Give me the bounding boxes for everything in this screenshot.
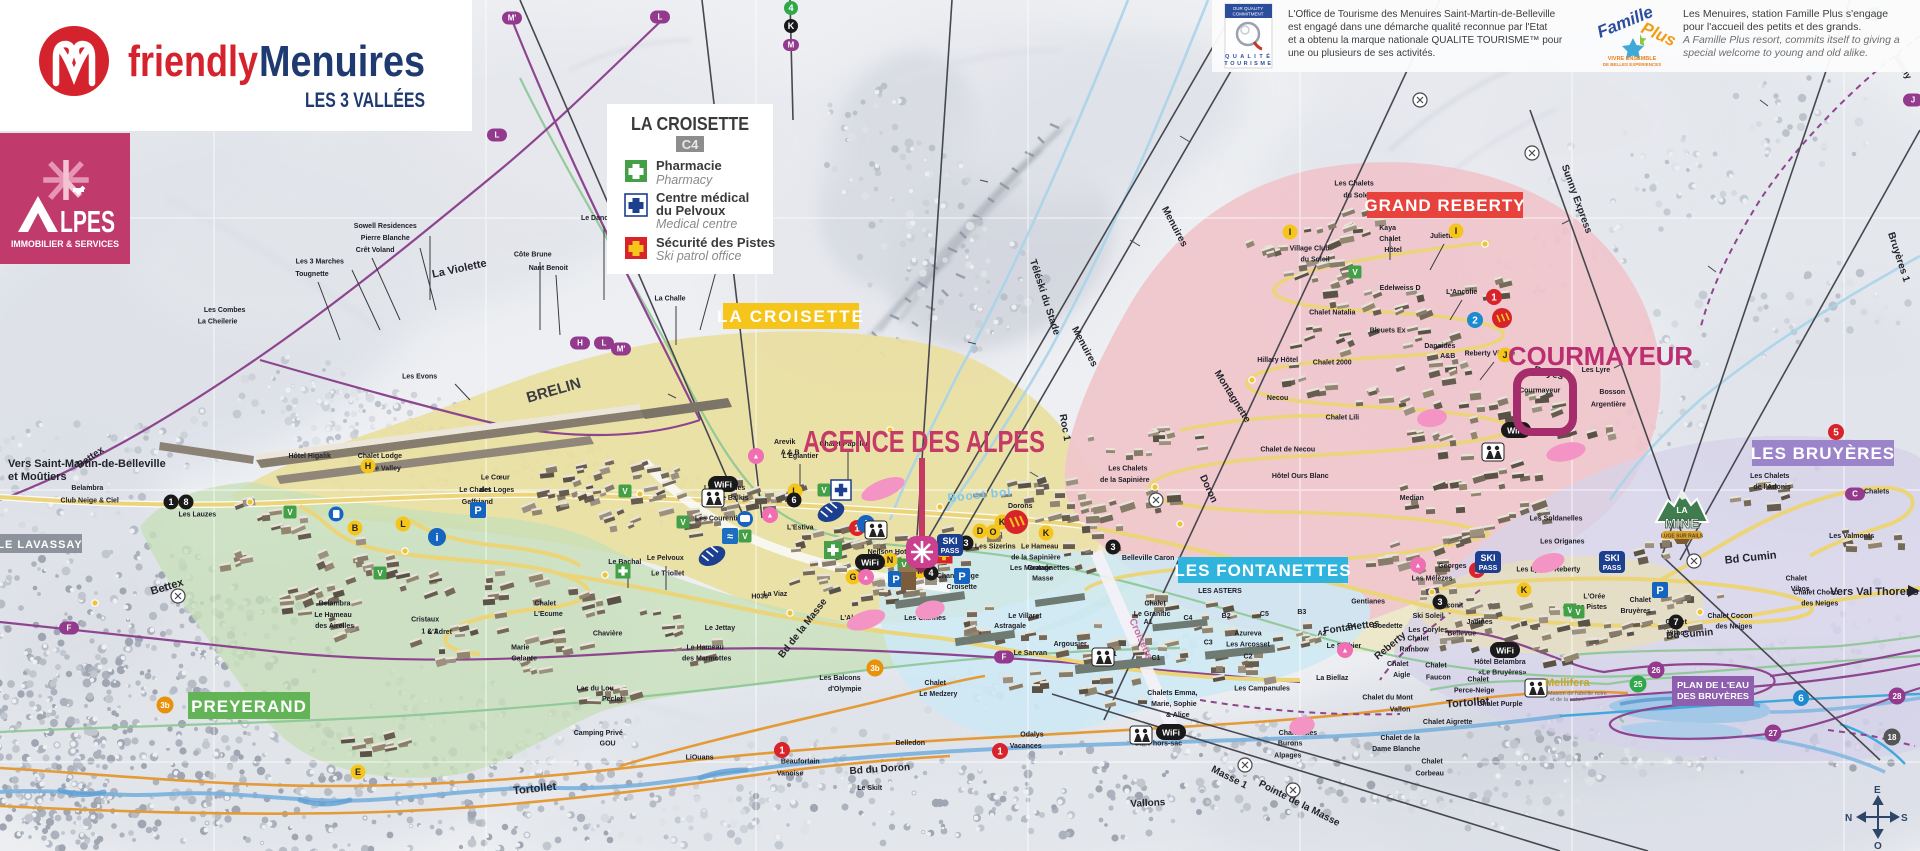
svg-text:▲: ▲: [767, 513, 774, 520]
svg-text:Hôtel Ours Blanc: Hôtel Ours Blanc: [1272, 473, 1329, 480]
svg-text:Courmayeur: Courmayeur: [1519, 387, 1561, 394]
svg-text:25: 25: [1634, 680, 1643, 689]
svg-text:Masse: Masse: [1032, 575, 1054, 582]
svg-text:LES FONTANETTES: LES FONTANETTES: [1174, 561, 1351, 580]
svg-text:Pierre Blanche: Pierre Blanche: [361, 235, 410, 242]
svg-text:Vacances: Vacances: [1010, 743, 1042, 750]
svg-text:G: G: [849, 572, 856, 582]
svg-text:Marie: Marie: [511, 645, 529, 652]
svg-text:3b: 3b: [160, 701, 169, 710]
svg-text:B2: B2: [1222, 613, 1231, 620]
svg-text:Le Hameau: Le Hameau: [686, 645, 723, 652]
svg-text:Les Chalets: Les Chalets: [1108, 465, 1147, 472]
svg-text:Sécurité des Pistes: Sécurité des Pistes: [656, 235, 775, 250]
svg-text:Corbeau: Corbeau: [1416, 770, 1444, 777]
svg-text:& Alice: & Alice: [1166, 712, 1190, 719]
svg-text:Vihos: Vihos: [1791, 586, 1810, 593]
svg-text:Mellifera: Mellifera: [1545, 677, 1591, 689]
svg-text:L: L: [495, 131, 500, 140]
svg-text:L'Orée: L'Orée: [1583, 593, 1605, 600]
svg-text:Perce-Neige: Perce-Neige: [1454, 688, 1495, 695]
svg-text:Q U A L I T É: Q U A L I T É: [1225, 52, 1271, 60]
svg-text:et Moûtiers: et Moûtiers: [8, 471, 67, 483]
svg-text:N: N: [1845, 813, 1852, 824]
svg-text:Chalet: Chalet: [1407, 635, 1429, 642]
svg-text:V: V: [287, 508, 293, 517]
svg-text:WiFi: WiFi: [714, 480, 732, 490]
svg-text:Argentière: Argentière: [1591, 401, 1626, 408]
svg-text:Peclet: Peclet: [602, 696, 623, 703]
svg-text:Rainbow: Rainbow: [1400, 646, 1430, 653]
svg-text:L'Ancolie: L'Ancolie: [1446, 289, 1477, 296]
svg-text:Menuires: Menuires: [259, 37, 425, 86]
svg-text:LE LAVASSAY: LE LAVASSAY: [0, 539, 83, 551]
svg-text:Medical centre: Medical centre: [656, 217, 737, 231]
svg-text:Vers Saint-Martin-de-Bellevill: Vers Saint-Martin-de-Belleville: [8, 458, 166, 470]
svg-text:Chalet de Necou: Chalet de Necou: [1260, 447, 1315, 454]
svg-text:Vallon: Vallon: [1390, 706, 1411, 713]
svg-text:L: L: [658, 13, 663, 22]
svg-text:H: H: [577, 339, 583, 348]
svg-text:Le Sarvan: Le Sarvan: [1014, 650, 1047, 657]
svg-text:3b: 3b: [870, 664, 879, 673]
svg-text:des Airelles: des Airelles: [315, 623, 354, 630]
svg-text:LPES: LPES: [60, 204, 115, 239]
svg-text:K: K: [1043, 528, 1050, 538]
svg-text:Les Montagnettes: Les Montagnettes: [1010, 565, 1070, 572]
svg-text:K: K: [788, 21, 795, 31]
svg-text:Les Coryles: Les Coryles: [1408, 627, 1448, 634]
svg-text:WiFi: WiFi: [1496, 646, 1514, 656]
svg-text:1: 1: [1491, 293, 1497, 304]
svg-text:Le Triollet: Le Triollet: [651, 571, 685, 578]
svg-text:Chalet: Chalet: [1421, 759, 1443, 766]
svg-text:LA CROISETTE: LA CROISETTE: [631, 114, 749, 134]
svg-text:Belleville Caron: Belleville Caron: [1122, 555, 1175, 562]
svg-text:La Biellaz: La Biellaz: [1316, 675, 1349, 682]
svg-text:3: 3: [1437, 597, 1442, 607]
svg-text:PASS: PASS: [1603, 565, 1622, 572]
svg-text:Lac du Lou: Lac du Lou: [576, 685, 613, 692]
svg-text:Chavière: Chavière: [593, 631, 623, 638]
svg-text:LA CROISETTE: LA CROISETTE: [717, 307, 865, 326]
svg-text:Ski patrol office: Ski patrol office: [656, 249, 742, 263]
svg-text:d'Olympie: d'Olympie: [828, 686, 862, 693]
svg-text:Cristaux: Cristaux: [411, 617, 439, 624]
svg-text:Hôtel Higalik: Hôtel Higalik: [288, 453, 331, 460]
svg-text:Burons: Burons: [1278, 741, 1303, 748]
svg-text:Belledon: Belledon: [895, 740, 925, 747]
svg-text:Les 3 Marches: Les 3 Marches: [296, 259, 344, 266]
svg-text:SKI: SKI: [1480, 553, 1495, 563]
svg-text:Bruyères: Bruyères: [1620, 608, 1650, 615]
svg-text:T O U R I S M E: T O U R I S M E: [1224, 61, 1271, 67]
svg-text:PASS: PASS: [941, 548, 960, 555]
svg-text:P: P: [958, 571, 965, 583]
svg-text:F: F: [67, 624, 72, 633]
svg-text:C2: C2: [1244, 653, 1253, 660]
svg-text:Pharmacie: Pharmacie: [656, 158, 722, 173]
svg-text:J: J: [1911, 96, 1915, 105]
svg-text:Faucon: Faucon: [1426, 674, 1451, 681]
svg-text:WiFi: WiFi: [861, 558, 879, 568]
svg-text:1: 1: [997, 747, 1003, 758]
svg-text:Le Medzery: Le Medzery: [919, 691, 957, 698]
svg-text:C5: C5: [1260, 611, 1269, 618]
svg-text:V: V: [742, 532, 748, 541]
svg-text:du Pelvoux: du Pelvoux: [656, 203, 726, 218]
svg-text:Chalet: Chalet: [1786, 575, 1808, 582]
svg-text:Club Neige & Ciel: Club Neige & Ciel: [61, 497, 119, 504]
svg-text:Chalet: Chalet: [1467, 677, 1489, 684]
svg-text:Chalet Lili: Chalet Lili: [1326, 415, 1360, 422]
svg-text:N: N: [887, 555, 894, 565]
svg-text:O: O: [989, 527, 996, 537]
svg-text:Les Campanules: Les Campanules: [1234, 685, 1290, 692]
svg-text:4: 4: [928, 568, 933, 578]
svg-text:Pharmacy: Pharmacy: [656, 173, 713, 187]
svg-text:Chalet Lodge: Chalet Lodge: [358, 453, 402, 460]
svg-text:Bosson: Bosson: [1599, 389, 1625, 396]
svg-text:B: B: [352, 523, 359, 533]
svg-text:Nant Benoit: Nant Benoit: [529, 265, 569, 272]
svg-text:Le Skilt: Le Skilt: [857, 785, 883, 792]
svg-text:Beaufortain: Beaufortain: [781, 759, 820, 766]
svg-text:Argousier: Argousier: [1054, 641, 1087, 648]
svg-text:PLAN DE L'EAU: PLAN DE L'EAU: [1677, 680, 1749, 690]
svg-text:8: 8: [183, 497, 188, 507]
svg-text:special welcome to young and o: special welcome to young and old alike.: [1683, 47, 1868, 59]
svg-text:Les Lauzes: Les Lauzes: [178, 511, 216, 518]
svg-text:Arevik: Arevik: [774, 439, 796, 446]
svg-text:SKI: SKI: [942, 536, 957, 546]
svg-text:6: 6: [1798, 694, 1804, 705]
svg-text:Vallons: Vallons: [1130, 797, 1166, 810]
svg-text:GOU: GOU: [600, 741, 616, 748]
svg-text:B3: B3: [1297, 609, 1306, 616]
svg-text:Le Cœur: Le Cœur: [481, 475, 510, 482]
svg-text:A & B: A & B: [781, 450, 800, 457]
svg-text:E: E: [355, 767, 361, 777]
svg-text:V: V: [377, 569, 383, 578]
svg-text:Marie, Sophie: Marie, Sophie: [1151, 701, 1197, 708]
svg-text:pour l'accueil des petits et d: pour l'accueil des petits et des grands.: [1683, 21, 1861, 33]
svg-text:L'Office de Tourisme des Menui: L'Office de Tourisme des Menuires Saint-…: [1288, 9, 1556, 20]
svg-text:A Famille Plus resort, commits: A Famille Plus resort, commits itself to…: [1682, 34, 1900, 46]
svg-text:des Neiges: des Neiges: [1715, 624, 1752, 631]
svg-text:E: E: [1874, 785, 1881, 796]
svg-text:I: I: [1289, 227, 1292, 237]
svg-text:Chalet du Mont: Chalet du Mont: [1362, 695, 1413, 702]
svg-text:V: V: [680, 518, 686, 527]
svg-text:Les Menuires, station Famille: Les Menuires, station Famille Plus s'eng…: [1683, 8, 1888, 20]
svg-text:Chalet: Chalet: [1630, 597, 1652, 604]
svg-text:Le Hameau: Le Hameau: [1021, 543, 1058, 550]
svg-text:Edelweiss D: Edelweiss D: [1380, 285, 1421, 292]
svg-text:OUR QUALITY: OUR QUALITY: [1233, 6, 1264, 11]
svg-text:PREYERAND: PREYERAND: [191, 697, 307, 716]
svg-text:Chalet de la: Chalet de la: [1380, 735, 1419, 742]
svg-text:Bleuets Ex: Bleuets Ex: [1370, 327, 1406, 334]
svg-text:V: V: [1352, 268, 1358, 277]
svg-text:4: 4: [788, 3, 793, 13]
svg-text:LUGE SUR RAILS: LUGE SUR RAILS: [1661, 534, 1704, 540]
svg-text:«Le Bruyères»: «Le Bruyères»: [1478, 670, 1526, 677]
svg-text:C3: C3: [1204, 639, 1213, 646]
svg-text:Les Chalets: Les Chalets: [1750, 473, 1789, 480]
svg-text:L'Estiva: L'Estiva: [787, 525, 814, 532]
svg-text:L: L: [400, 519, 406, 529]
svg-text:2: 2: [1472, 316, 1478, 327]
svg-text:Vanoise: Vanoise: [777, 770, 804, 777]
svg-text:LES 3 VALLÉES: LES 3 VALLÉES: [305, 89, 425, 112]
svg-text:LiOuans: LiOuans: [686, 755, 714, 762]
svg-text:Hôtel Belambra: Hôtel Belambra: [1474, 659, 1525, 666]
svg-text:Le Granitic: Le Granitic: [1134, 611, 1171, 618]
svg-text:Le Pelvoux: Le Pelvoux: [647, 555, 684, 562]
svg-text:Chalet Natalia: Chalet Natalia: [1309, 309, 1355, 316]
svg-text:Median: Median: [1400, 495, 1424, 502]
svg-text:Le Chalet: Le Chalet: [459, 487, 491, 494]
svg-text:Chalet Aigrette: Chalet Aigrette: [1423, 719, 1473, 726]
svg-text:18: 18: [1888, 733, 1897, 742]
svg-text:Les Soldanelles: Les Soldanelles: [1530, 515, 1583, 522]
svg-text:Jadines: Jadines: [1467, 619, 1493, 626]
svg-text:C4: C4: [682, 137, 699, 152]
svg-text:P: P: [1656, 585, 1663, 597]
svg-text:P: P: [474, 505, 481, 517]
svg-text:S: S: [1901, 813, 1908, 824]
svg-text:Hillary Hôtel: Hillary Hôtel: [1257, 357, 1298, 364]
svg-text:Le Hameau: Le Hameau: [314, 612, 351, 619]
svg-text:▲: ▲: [1415, 563, 1422, 570]
svg-text:Sowell Residences: Sowell Residences: [354, 223, 417, 230]
svg-text:M: M: [788, 41, 795, 50]
svg-text:Côte Brune: Côte Brune: [514, 252, 552, 259]
svg-text:Croisette: Croisette: [947, 584, 977, 591]
svg-text:K: K: [1521, 585, 1528, 595]
svg-text:Les Evons: Les Evons: [402, 373, 437, 380]
svg-text:H036: H036: [751, 593, 768, 600]
svg-text:1: 1: [168, 497, 173, 507]
svg-text:3: 3: [1110, 542, 1115, 552]
svg-text:C4: C4: [1183, 615, 1192, 622]
svg-text:Necou: Necou: [1267, 395, 1288, 402]
svg-text:de la Sapinière: de la Sapinière: [1011, 554, 1061, 561]
svg-text:et a obtenu la marque national: et a obtenu la marque nationale QUALITE …: [1288, 35, 1563, 46]
svg-text:MINE: MINE: [1665, 515, 1700, 531]
svg-text:M': M': [508, 14, 517, 23]
svg-text:Odalys: Odalys: [1020, 731, 1043, 738]
svg-text:Camping Privé: Camping Privé: [574, 730, 623, 737]
svg-text:AGENCE DES ALPES: AGENCE DES ALPES: [803, 424, 1045, 459]
svg-text:▲: ▲: [863, 575, 870, 582]
svg-text:Georges: Georges: [1438, 563, 1467, 570]
svg-text:Vers Val Thorens: Vers Val Thorens: [1830, 586, 1919, 598]
svg-text:une ou plusieurs de ses activi: une ou plusieurs de ses activités.: [1288, 48, 1435, 59]
svg-text:A1: A1: [1144, 619, 1153, 626]
svg-text:DE BELLES EXPÉRIENCES: DE BELLES EXPÉRIENCES: [1603, 60, 1662, 67]
svg-text:Les Sizerins: Les Sizerins: [975, 543, 1016, 550]
svg-text:des Neiges: des Neiges: [1801, 600, 1838, 607]
svg-text:Ski Soleil: Ski Soleil: [1413, 613, 1444, 620]
svg-text:Belambra: Belambra: [71, 485, 103, 492]
svg-text:Belambra: Belambra: [319, 600, 351, 607]
svg-text:est engagé dans une démarche q: est engagé dans une démarche qualité rec…: [1288, 22, 1548, 33]
svg-text:Chalet: Chalet: [1387, 661, 1409, 668]
svg-text:Chalet: Chalet: [1144, 600, 1166, 607]
svg-text:Azureva: Azureva: [1234, 631, 1261, 638]
svg-text:Hôtel: Hôtel: [1384, 247, 1402, 254]
svg-text:Kaya: Kaya: [1379, 225, 1396, 232]
svg-text:L'Ecume: L'Ecume: [534, 611, 563, 618]
svg-text:des Marmottes: des Marmottes: [682, 656, 732, 663]
svg-text:Galante: Galante: [511, 656, 537, 663]
svg-text:Chalets Emma,: Chalets Emma,: [1147, 690, 1197, 697]
svg-text:i: i: [435, 532, 438, 544]
svg-text:Tougnette: Tougnette: [295, 271, 328, 278]
svg-text:de l'Adonis: de l'Adonis: [1753, 484, 1791, 491]
svg-text:F: F: [1002, 653, 1007, 662]
svg-text:V: V: [622, 487, 628, 496]
svg-text:O: O: [1874, 841, 1882, 851]
svg-text:5: 5: [1833, 428, 1839, 439]
svg-text:friendly: friendly: [128, 37, 258, 86]
svg-text:SKI: SKI: [1604, 553, 1619, 563]
svg-text:COMMITMENT: COMMITMENT: [1233, 12, 1264, 17]
svg-text:Les Arcosset: Les Arcosset: [1226, 642, 1270, 649]
svg-text:La Cheilerie: La Cheilerie: [198, 319, 238, 326]
svg-text:D: D: [977, 526, 984, 536]
svg-text:M': M': [617, 345, 626, 354]
svg-text:7: 7: [1673, 617, 1678, 627]
svg-text:Les Balcons: Les Balcons: [819, 675, 860, 682]
svg-text:COURMAYEUR: COURMAYEUR: [1508, 341, 1693, 371]
svg-text:GRAND REBERTY: GRAND REBERTY: [1364, 196, 1525, 215]
svg-text:27: 27: [1769, 729, 1778, 738]
svg-text:Chalet: Chalet: [1425, 663, 1447, 670]
svg-text:Les Mélèzes: Les Mélèzes: [1412, 575, 1453, 582]
svg-text:V: V: [1575, 608, 1581, 617]
svg-text:Aigle: Aigle: [1393, 672, 1410, 679]
svg-text:3: 3: [963, 538, 968, 548]
svg-text:PASS: PASS: [1479, 565, 1498, 572]
svg-text:J: J: [1502, 350, 1507, 360]
svg-text:▲: ▲: [1342, 648, 1349, 655]
svg-text:La Challe: La Challe: [654, 295, 685, 302]
svg-text:Les Origanes: Les Origanes: [1540, 539, 1584, 546]
svg-text:WiFi: WiFi: [1162, 728, 1180, 738]
svg-text:DES BRUYÈRES: DES BRUYÈRES: [1677, 691, 1749, 701]
svg-text:Le Jettay: Le Jettay: [705, 625, 735, 632]
svg-text:H: H: [365, 461, 372, 471]
svg-text:Dorons: Dorons: [1008, 503, 1033, 510]
svg-text:LES ASTERS: LES ASTERS: [1198, 588, 1242, 595]
svg-text:Danaides: Danaides: [1424, 343, 1455, 350]
svg-text:28: 28: [1893, 692, 1902, 701]
svg-text:Chalet: Chalet: [925, 680, 947, 687]
svg-text:C: C: [1852, 490, 1858, 499]
svg-text:Alpages: Alpages: [1274, 752, 1301, 759]
svg-text:Les Valmonts: Les Valmonts: [1829, 533, 1874, 540]
svg-text:Astragale: Astragale: [994, 623, 1026, 630]
svg-text:de la Sapinière: de la Sapinière: [1100, 477, 1150, 484]
svg-text:L'Adret: L'Adret: [428, 629, 453, 636]
svg-text:Village Club: Village Club: [1290, 245, 1330, 252]
svg-text:Les Combes: Les Combes: [204, 307, 246, 314]
svg-text:Gentianes: Gentianes: [1351, 599, 1385, 606]
svg-text:▲: ▲: [753, 454, 760, 461]
svg-text:LA: LA: [1676, 505, 1687, 515]
svg-text:Chalet Cocon: Chalet Cocon: [1707, 613, 1752, 620]
svg-text:Le Villaret: Le Villaret: [1008, 613, 1042, 620]
svg-text:Chalet: Chalet: [535, 600, 557, 607]
svg-text:Crêt Voland: Crêt Voland: [356, 247, 395, 254]
svg-text:6: 6: [791, 495, 796, 505]
svg-text:L: L: [602, 339, 607, 348]
svg-text:LES BRUYÈRES: LES BRUYÈRES: [1751, 444, 1895, 463]
svg-text:I: I: [1455, 226, 1458, 236]
svg-text:A&B: A&B: [1440, 353, 1455, 360]
svg-text:P: P: [892, 574, 899, 586]
svg-text:IMMOBILIER & SERVICES: IMMOBILIER & SERVICES: [11, 239, 119, 249]
svg-text:26: 26: [1652, 666, 1661, 675]
svg-text:et de la nature: et de la nature: [1550, 697, 1585, 703]
svg-text:V: V: [821, 486, 827, 495]
svg-text:1: 1: [779, 746, 785, 757]
svg-text:≈: ≈: [727, 531, 733, 543]
svg-text:du Soleil: du Soleil: [1300, 256, 1329, 263]
svg-text:Chalet 2000: Chalet 2000: [1313, 359, 1352, 366]
svg-text:Les Chalets: Les Chalets: [1334, 181, 1373, 188]
svg-text:Bellevue: Bellevue: [1447, 631, 1476, 638]
svg-text:Dame Blanche: Dame Blanche: [1372, 746, 1420, 753]
